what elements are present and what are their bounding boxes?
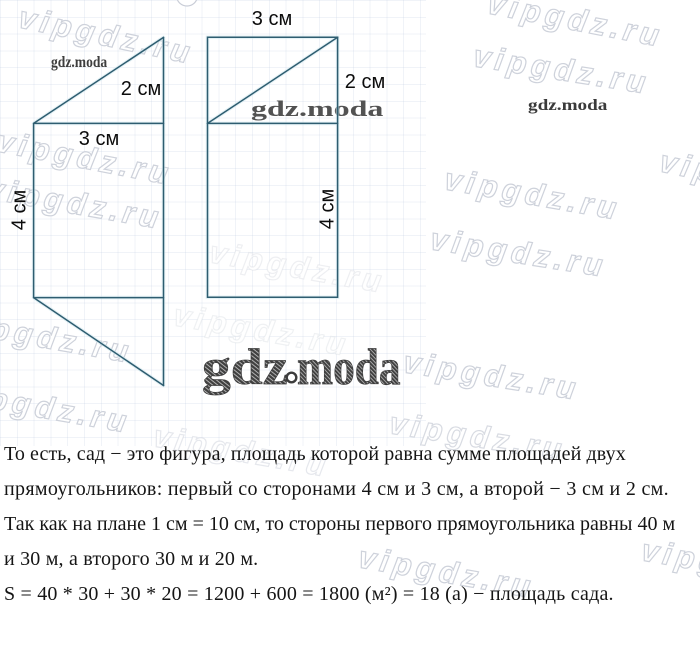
svg-text:vipgdz.ru: vipgdz.ru (0, 374, 133, 439)
svg-text:vipgdz.ru: vipgdz.ru (401, 344, 583, 406)
svg-text:2 см: 2 см (121, 78, 161, 100)
svg-text:gdz.moda: gdz.moda (251, 96, 384, 121)
svg-text:2 см: 2 см (345, 71, 385, 93)
svg-text:vipgdz.ru: vipgdz.ru (428, 221, 610, 283)
svg-text:gdz.moda: gdz.moda (51, 54, 108, 71)
svg-text:vipgdz.ru: vipgdz.ru (442, 161, 624, 226)
svg-text:vipgdz.ru: vipgdz.ru (657, 144, 700, 215)
svg-text:vipgdz.ru: vipgdz.ru (639, 532, 700, 597)
svg-text:3 см: 3 см (79, 128, 119, 150)
svg-text:4 см: 4 см (317, 189, 339, 229)
svg-text:vipgdz.ru: vipgdz.ru (471, 38, 653, 100)
svg-text:4 см: 4 см (9, 190, 31, 230)
svg-text:3 см: 3 см (252, 8, 292, 30)
svg-text:vipgdz.ru: vipgdz.ru (207, 234, 389, 299)
svg-text:gdz.moda: gdz.moda (528, 96, 608, 114)
svg-text:vipgdz.ru: vipgdz.ru (0, 304, 135, 369)
svg-text:gdz: gdz (202, 339, 288, 395)
svg-text:moda: moda (297, 340, 401, 396)
